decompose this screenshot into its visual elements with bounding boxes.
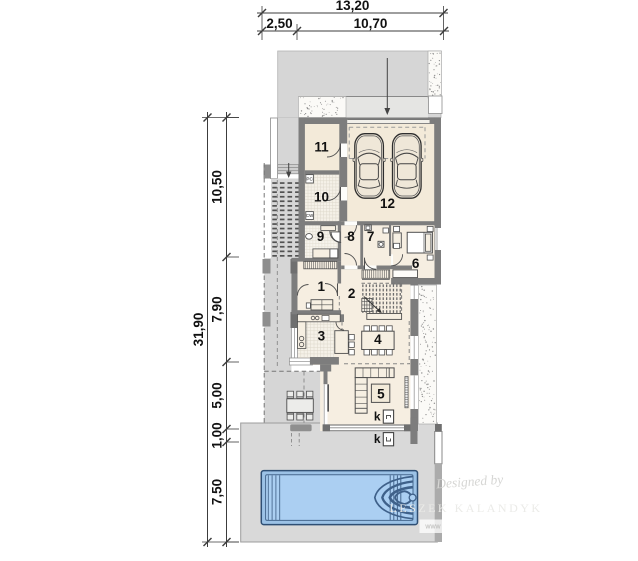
svg-text:8: 8	[347, 229, 355, 244]
svg-text:PC: PC	[306, 177, 313, 182]
svg-text:www: www	[424, 524, 441, 531]
svg-text:7,90: 7,90	[210, 296, 225, 322]
svg-text:5,00: 5,00	[210, 382, 225, 408]
svg-text:10: 10	[314, 190, 329, 205]
svg-text:1: 1	[318, 279, 326, 294]
svg-text:13,20: 13,20	[336, 0, 370, 13]
svg-text:CW: CW	[306, 213, 314, 218]
svg-text:2: 2	[348, 286, 356, 301]
svg-text:11: 11	[314, 140, 329, 155]
svg-text:7: 7	[367, 229, 375, 244]
svg-text:12: 12	[380, 196, 395, 211]
svg-text:10,70: 10,70	[354, 16, 388, 31]
svg-text:31,90: 31,90	[191, 313, 206, 347]
svg-text:1,00: 1,00	[210, 422, 225, 448]
svg-text:k: k	[374, 432, 381, 446]
svg-text:2,50: 2,50	[266, 16, 292, 31]
svg-text:3: 3	[318, 329, 326, 344]
svg-text:9: 9	[317, 229, 325, 244]
svg-text:4: 4	[374, 332, 382, 347]
svg-text:6: 6	[412, 256, 420, 271]
svg-text:7,50: 7,50	[210, 479, 225, 505]
svg-text:10,50: 10,50	[210, 170, 225, 204]
svg-text:k: k	[374, 410, 381, 424]
svg-text:LESZEK KALANDYK: LESZEK KALANDYK	[389, 501, 542, 515]
svg-text:5: 5	[377, 387, 385, 402]
